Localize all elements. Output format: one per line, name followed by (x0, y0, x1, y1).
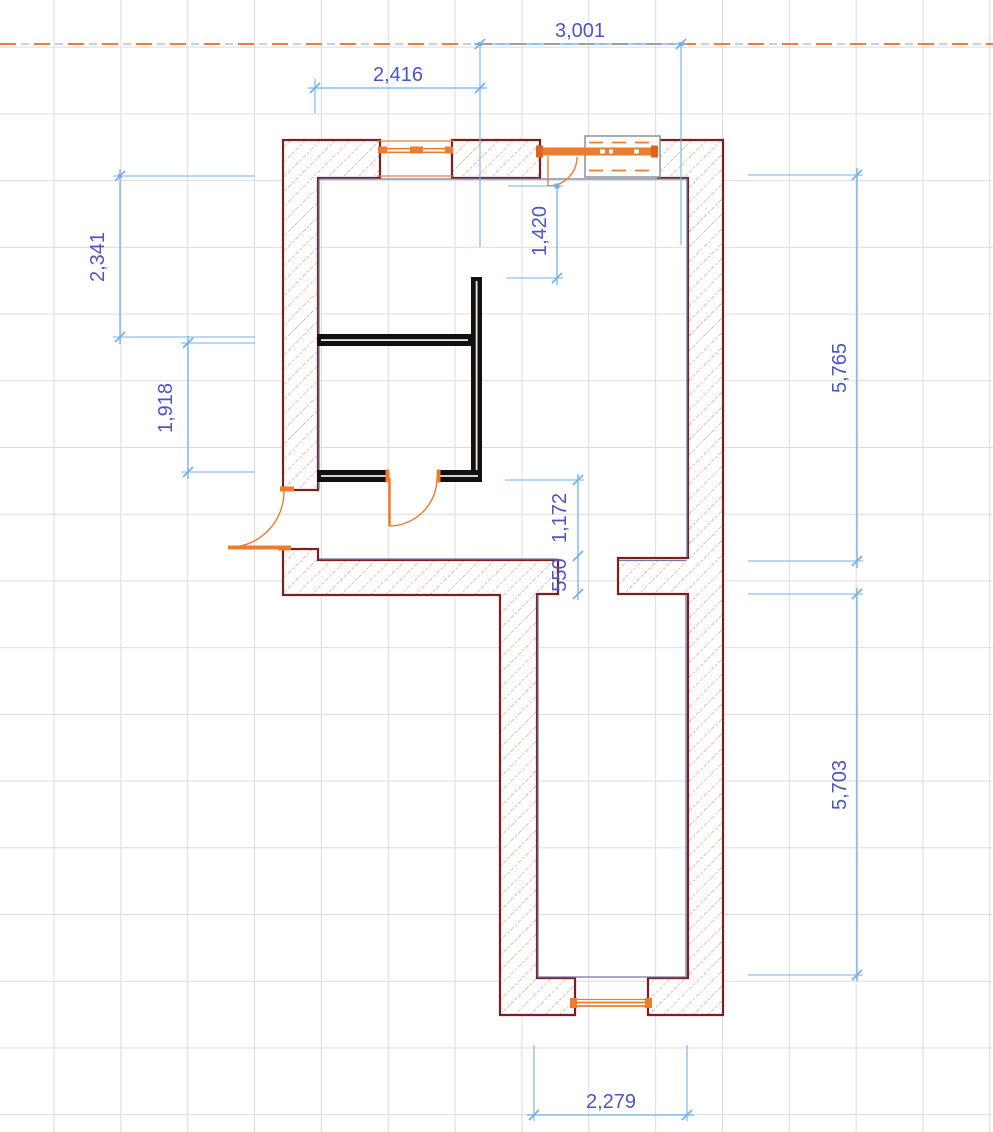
wall-top-left-segment-hatch[interactable] (283, 140, 380, 490)
dimension-2279[interactable]: 2,279 (527, 1045, 694, 1121)
dim-marker (555, 184, 560, 189)
dimension-2341[interactable]: 2,341 (87, 169, 255, 344)
window-mullion-mid (410, 147, 423, 154)
window-bottom-cap-left (570, 998, 577, 1008)
wall-top-mid-segment-hatch[interactable] (452, 140, 540, 178)
dim-text[interactable]: 3,001 (555, 20, 605, 42)
dimension-5703[interactable]: 5,703 (748, 588, 863, 981)
entrance-door-swing-arc (228, 492, 284, 548)
interior-door-swing-arc (390, 478, 438, 526)
wall-right-and-corridor-hatch[interactable] (618, 140, 723, 1015)
drawing-canvas: 3,001 2,416 2,341 1,918 (0, 0, 993, 1132)
door-swing-arc-top (548, 157, 577, 186)
window-top-left[interactable] (377, 141, 454, 176)
floor-plan-svg: 3,001 2,416 2,341 1,918 (0, 0, 993, 1132)
window-bottom[interactable] (570, 998, 652, 1008)
door-panel[interactable] (537, 148, 658, 156)
dim-marker (478, 42, 482, 46)
window-mullion-left (378, 147, 387, 154)
entrance-door-left[interactable] (228, 487, 294, 551)
interior-partitions[interactable] (317, 277, 482, 483)
dim-text[interactable]: 5,703 (829, 760, 851, 810)
dim-text[interactable]: 1,172 (549, 493, 571, 543)
door-panel-end-left (536, 146, 543, 158)
dim-text[interactable]: 1,918 (155, 383, 177, 433)
dim-text[interactable]: 550 (549, 558, 571, 591)
partition-vertical-core (476, 281, 478, 479)
wall-bottom-and-corridor-left-hatch[interactable] (283, 549, 575, 1015)
dimension-5765[interactable]: 5,765 (748, 168, 863, 568)
dim-text[interactable]: 1,420 (529, 206, 551, 256)
dim-text[interactable]: 5,765 (829, 343, 851, 393)
door-panel-gap-3 (634, 150, 639, 154)
interior-door[interactable] (390, 478, 438, 526)
entrance-door-jamb-top (280, 487, 294, 492)
door-panel-gap-1 (600, 150, 605, 154)
dimension-1420[interactable]: 1,420 (506, 184, 563, 286)
dim-text[interactable]: 2,416 (373, 64, 423, 86)
dim-marker (118, 174, 122, 178)
partition-horizontal-upper-core (321, 339, 468, 341)
dim-marker (679, 42, 683, 46)
dimension-3001[interactable]: 3,001 (474, 20, 688, 247)
partition-horizontal-lower-right-core (440, 475, 478, 477)
door-panel-end-right (651, 146, 658, 158)
exterior-walls[interactable] (283, 140, 723, 1015)
dim-text[interactable]: 2,341 (87, 232, 109, 282)
window-mullion-right (445, 147, 453, 154)
dim-text[interactable]: 2,279 (586, 1091, 636, 1113)
window-bottom-cap-right (645, 998, 652, 1008)
partition-horizontal-lower-left-core (321, 475, 386, 477)
door-panel-gap-2 (609, 150, 613, 154)
dimension-1918[interactable]: 1,918 (155, 336, 255, 479)
dimension-2416[interactable]: 2,416 (308, 64, 487, 113)
